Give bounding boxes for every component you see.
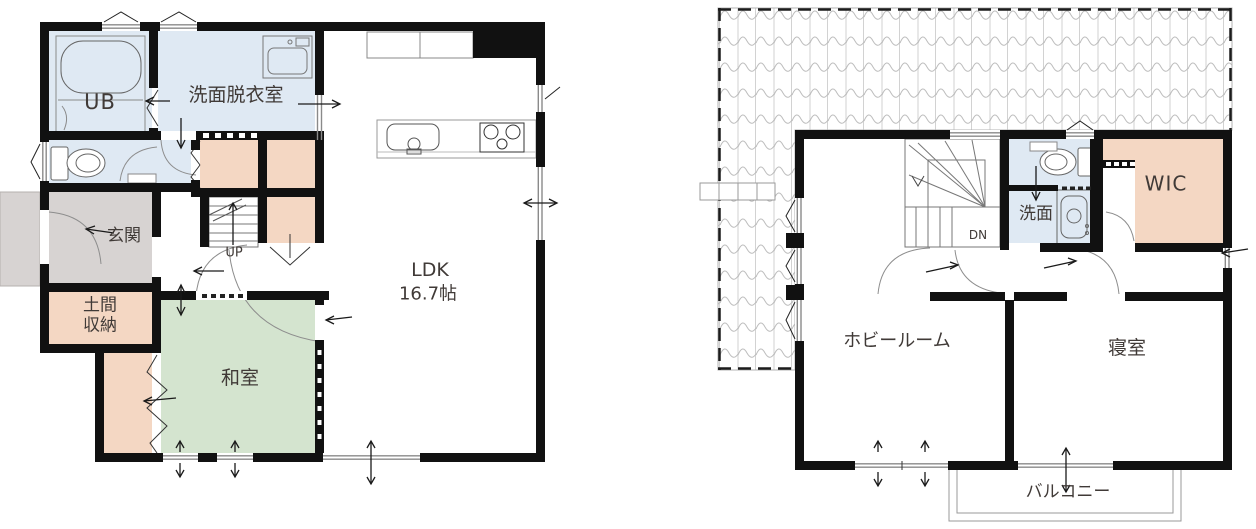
room-label-washroom-1f: 洗面脱衣室 [188,85,283,107]
room-label-wic: WIC [1145,173,1188,196]
room-label-entrance: 玄関 [107,227,141,247]
room-label-ub: UB [84,90,116,114]
floor-plan-drawing [0,0,1256,529]
kitchen-sink [387,124,439,154]
room-label-hobby: ホビールーム [843,332,950,353]
room-label-bedroom: 寝室 [1108,338,1146,360]
roof-vent [700,183,775,200]
floor-plan-page: UB 洗面脱衣室 玄関 土間収納 和室 LDK 16.7帖 UP 洗面 WIC … [0,0,1256,529]
kitchen-stove [480,123,524,152]
room-label-tatami: 和室 [221,368,259,390]
room-label-ldk: LDK [411,260,449,282]
room-label-balcony: バルコニー [1026,483,1111,503]
room-label-ldk-size: 16.7帖 [399,285,457,306]
stairs-label-dn: DN [969,229,987,243]
stairs-label-up: UP [225,247,242,262]
room-label-washroom-2f: 洗面 [1019,205,1053,225]
room-label-doma-storage: 土間収納 [77,296,123,335]
